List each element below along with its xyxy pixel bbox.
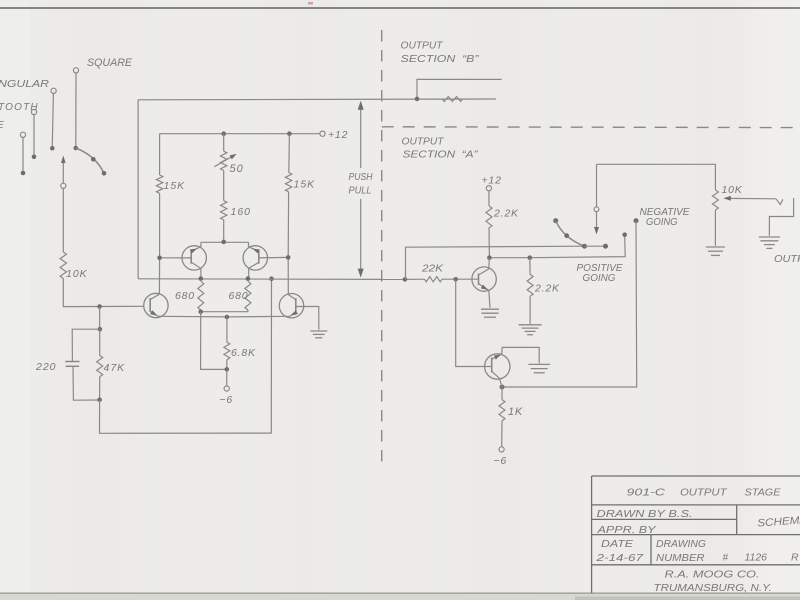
svg-text:R: R — [791, 552, 800, 564]
svg-text:2.2K: 2.2K — [534, 283, 560, 295]
svg-text:E: E — [0, 120, 5, 131]
svg-text:R.A. MOOG CO.: R.A. MOOG CO. — [665, 569, 760, 581]
svg-text:NUMBER: NUMBER — [656, 552, 705, 564]
svg-text:1K: 1K — [508, 406, 523, 418]
svg-text:22K: 22K — [421, 263, 444, 275]
svg-text:OUTPUT: OUTPUT — [680, 487, 728, 499]
svg-text:APPR. BY: APPR. BY — [596, 524, 656, 536]
svg-text:1126: 1126 — [745, 552, 768, 564]
svg-text:DATE: DATE — [601, 538, 634, 550]
svg-text:SECTION “B”: SECTION “B” — [401, 53, 480, 65]
svg-text:#: # — [723, 553, 729, 564]
svg-text:+12: +12 — [328, 129, 348, 141]
svg-text:OUTPUT: OUTPUT — [774, 253, 800, 265]
svg-text:901-C: 901-C — [627, 487, 666, 499]
svg-text:OUTPUT: OUTPUT — [401, 40, 445, 52]
svg-text:SQUARE: SQUARE — [87, 57, 133, 69]
svg-text:NGULAR: NGULAR — [0, 78, 49, 90]
svg-text:GOING: GOING — [583, 272, 616, 284]
svg-text:SECTION “A”: SECTION “A” — [403, 149, 479, 161]
svg-text:STAGE: STAGE — [745, 487, 782, 499]
svg-text:−6: −6 — [220, 394, 234, 406]
svg-text:10K: 10K — [66, 268, 88, 280]
svg-text:6.8K: 6.8K — [231, 347, 256, 359]
svg-text:DRAWING: DRAWING — [656, 538, 706, 550]
svg-text:TOOTH: TOOTH — [0, 102, 39, 113]
svg-text:PUSH: PUSH — [349, 172, 374, 183]
svg-text:10K: 10K — [722, 184, 743, 196]
svg-text:DRAWN BY B.S.: DRAWN BY B.S. — [597, 508, 693, 520]
svg-text:680: 680 — [175, 290, 195, 302]
svg-text:2-14-67: 2-14-67 — [595, 552, 644, 564]
svg-text:−6: −6 — [494, 455, 508, 467]
svg-text:+12: +12 — [482, 174, 502, 186]
svg-text:47K: 47K — [104, 362, 126, 374]
svg-text:TRUMANSBURG, N.Y.: TRUMANSBURG, N.Y. — [654, 582, 773, 594]
svg-text:GOING: GOING — [646, 216, 678, 228]
svg-text:680: 680 — [229, 290, 249, 302]
svg-text:2.2K: 2.2K — [493, 208, 519, 220]
svg-text:15K: 15K — [164, 180, 186, 192]
svg-text:PULL: PULL — [349, 185, 372, 197]
svg-text:OUTPUT: OUTPUT — [402, 136, 446, 148]
svg-text:220: 220 — [35, 361, 57, 373]
svg-text:15K: 15K — [294, 179, 316, 191]
svg-text:160: 160 — [231, 206, 252, 218]
svg-text:50: 50 — [230, 163, 244, 175]
